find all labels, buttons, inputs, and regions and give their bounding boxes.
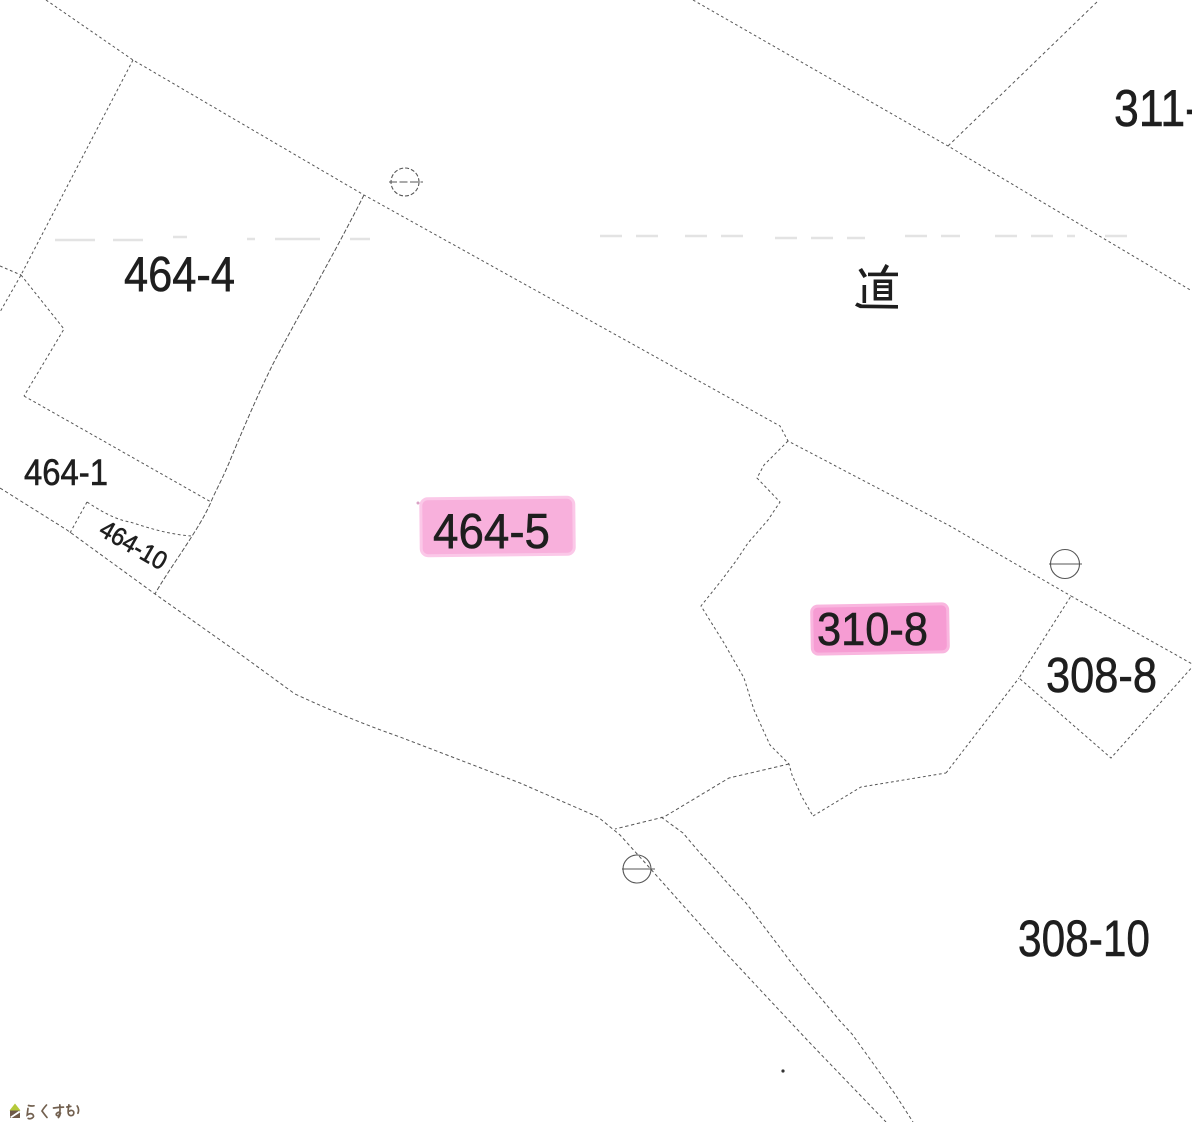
svg-text:310-8: 310-8: [817, 603, 928, 655]
svg-text:464-10: 464-10: [95, 515, 172, 576]
svg-text:464-4: 464-4: [124, 248, 235, 302]
svg-text:308-10: 308-10: [1018, 910, 1150, 967]
svg-text:464-1: 464-1: [24, 452, 108, 493]
svg-text:308-8: 308-8: [1046, 649, 1157, 703]
svg-text:464-5: 464-5: [433, 505, 550, 559]
svg-text:311-: 311-: [1114, 80, 1192, 138]
